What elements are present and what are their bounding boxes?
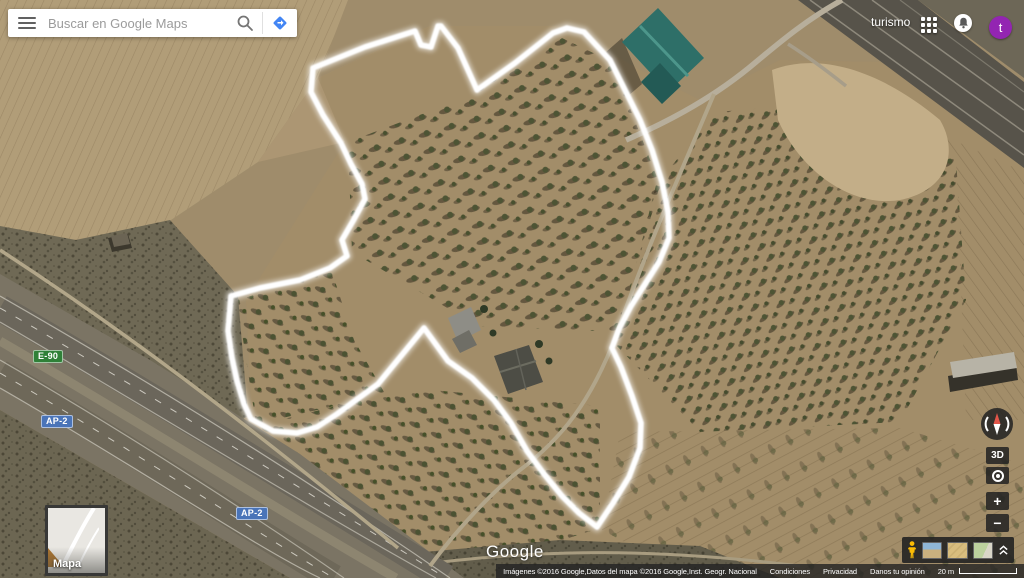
- directions-icon[interactable]: [263, 9, 297, 37]
- scale-label: 20 m: [938, 567, 954, 576]
- imagery-credits: Imágenes ©2016 Google,Datos del mapa ©20…: [503, 567, 757, 576]
- zoom-in-button[interactable]: +: [986, 492, 1009, 510]
- search-input[interactable]: [46, 15, 228, 32]
- imagery-thumb-map[interactable]: [973, 542, 993, 559]
- satellite-map: [0, 0, 1024, 578]
- imagery-thumb-terrain[interactable]: [947, 542, 967, 559]
- scale-bar: [959, 568, 1017, 574]
- notifications-bell-icon[interactable]: [954, 14, 972, 32]
- feedback-link[interactable]: Danos tu opinión: [870, 567, 925, 576]
- imagery-bar: [902, 537, 1014, 563]
- google-logo[interactable]: Google: [486, 542, 544, 562]
- attribution-bar: Imágenes ©2016 Google,Datos del mapa ©20…: [496, 564, 1024, 578]
- privacy-link[interactable]: Privacidad: [823, 567, 857, 576]
- scale-control: 20 m: [938, 567, 1017, 576]
- my-location-button[interactable]: [986, 467, 1009, 484]
- search-icon[interactable]: [228, 9, 262, 37]
- avatar[interactable]: t: [989, 16, 1012, 39]
- map-thumb-label: Mapa: [53, 558, 81, 570]
- terms-link[interactable]: Condiciones: [770, 567, 810, 576]
- pegman-icon[interactable]: [907, 540, 917, 560]
- avatar-letter: t: [999, 20, 1003, 35]
- account-name: turismo: [871, 15, 910, 29]
- imagery-thumb-satellite[interactable]: [922, 542, 942, 559]
- tilt-3d-button[interactable]: 3D: [986, 447, 1009, 464]
- map-type-toggle[interactable]: Mapa: [45, 505, 108, 576]
- cypress-1: [480, 305, 488, 313]
- search-box[interactable]: [8, 9, 297, 37]
- compass-control[interactable]: [979, 406, 1015, 447]
- map-canvas[interactable]: E-90AP-2AP-2 turismo t: [0, 0, 1024, 578]
- hamburger-menu-icon[interactable]: [8, 9, 46, 37]
- zoom-out-button[interactable]: −: [986, 514, 1009, 532]
- apps-grid-icon[interactable]: [921, 17, 937, 33]
- cypress-2: [490, 330, 497, 337]
- cypress-4: [546, 358, 553, 365]
- cypress-3: [535, 340, 543, 348]
- collapse-chevron-icon[interactable]: [998, 543, 1009, 557]
